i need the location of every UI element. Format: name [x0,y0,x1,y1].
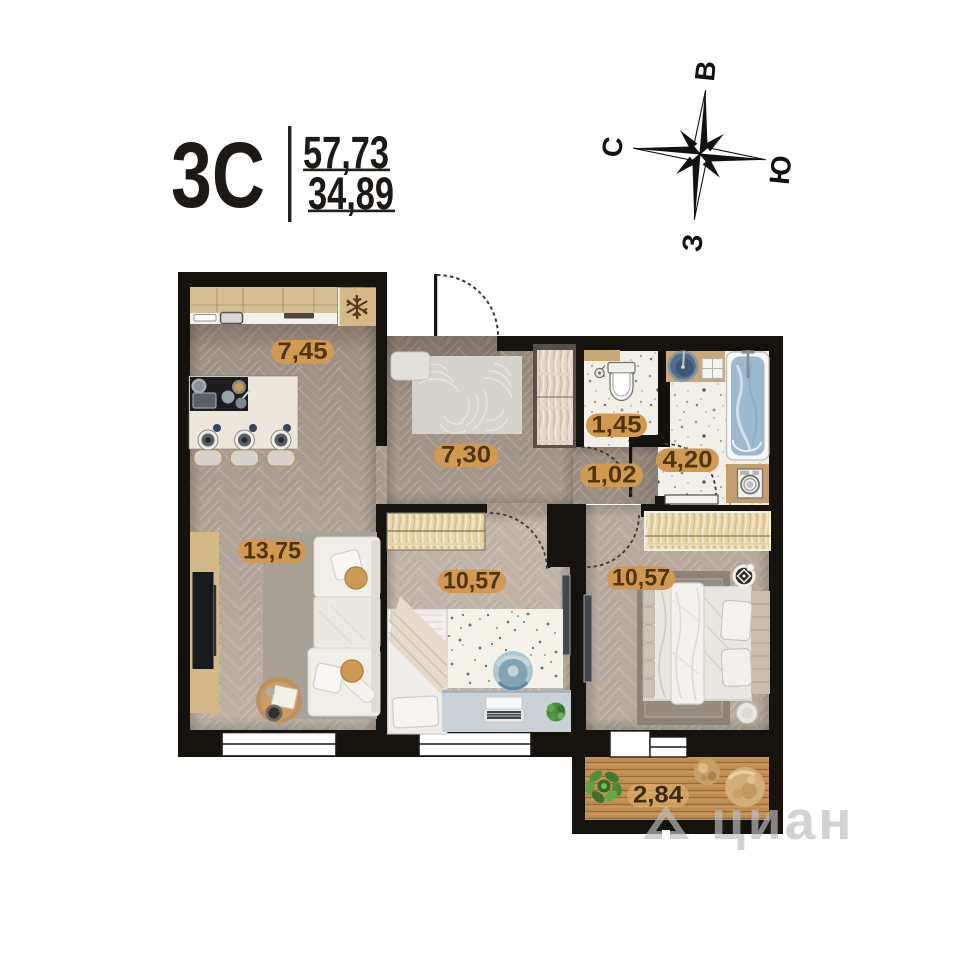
svg-text:1,45: 1,45 [592,412,642,439]
svg-text:13,75: 13,75 [243,538,301,565]
svg-text:10,57: 10,57 [443,568,501,595]
svg-text:циан: циан [711,789,854,851]
svg-text:4,20: 4,20 [663,447,713,474]
svg-text:1,02: 1,02 [587,462,637,489]
svg-text:С: С [596,135,629,158]
svg-text:7,30: 7,30 [441,442,491,469]
svg-text:Ю: Ю [764,154,798,186]
svg-text:2,84: 2,84 [633,782,684,809]
svg-text:3С: 3С [171,123,265,227]
svg-text:7,45: 7,45 [278,338,328,365]
svg-text:З: З [676,233,709,254]
svg-text:10,57: 10,57 [612,565,670,592]
svg-text:В: В [689,59,722,82]
